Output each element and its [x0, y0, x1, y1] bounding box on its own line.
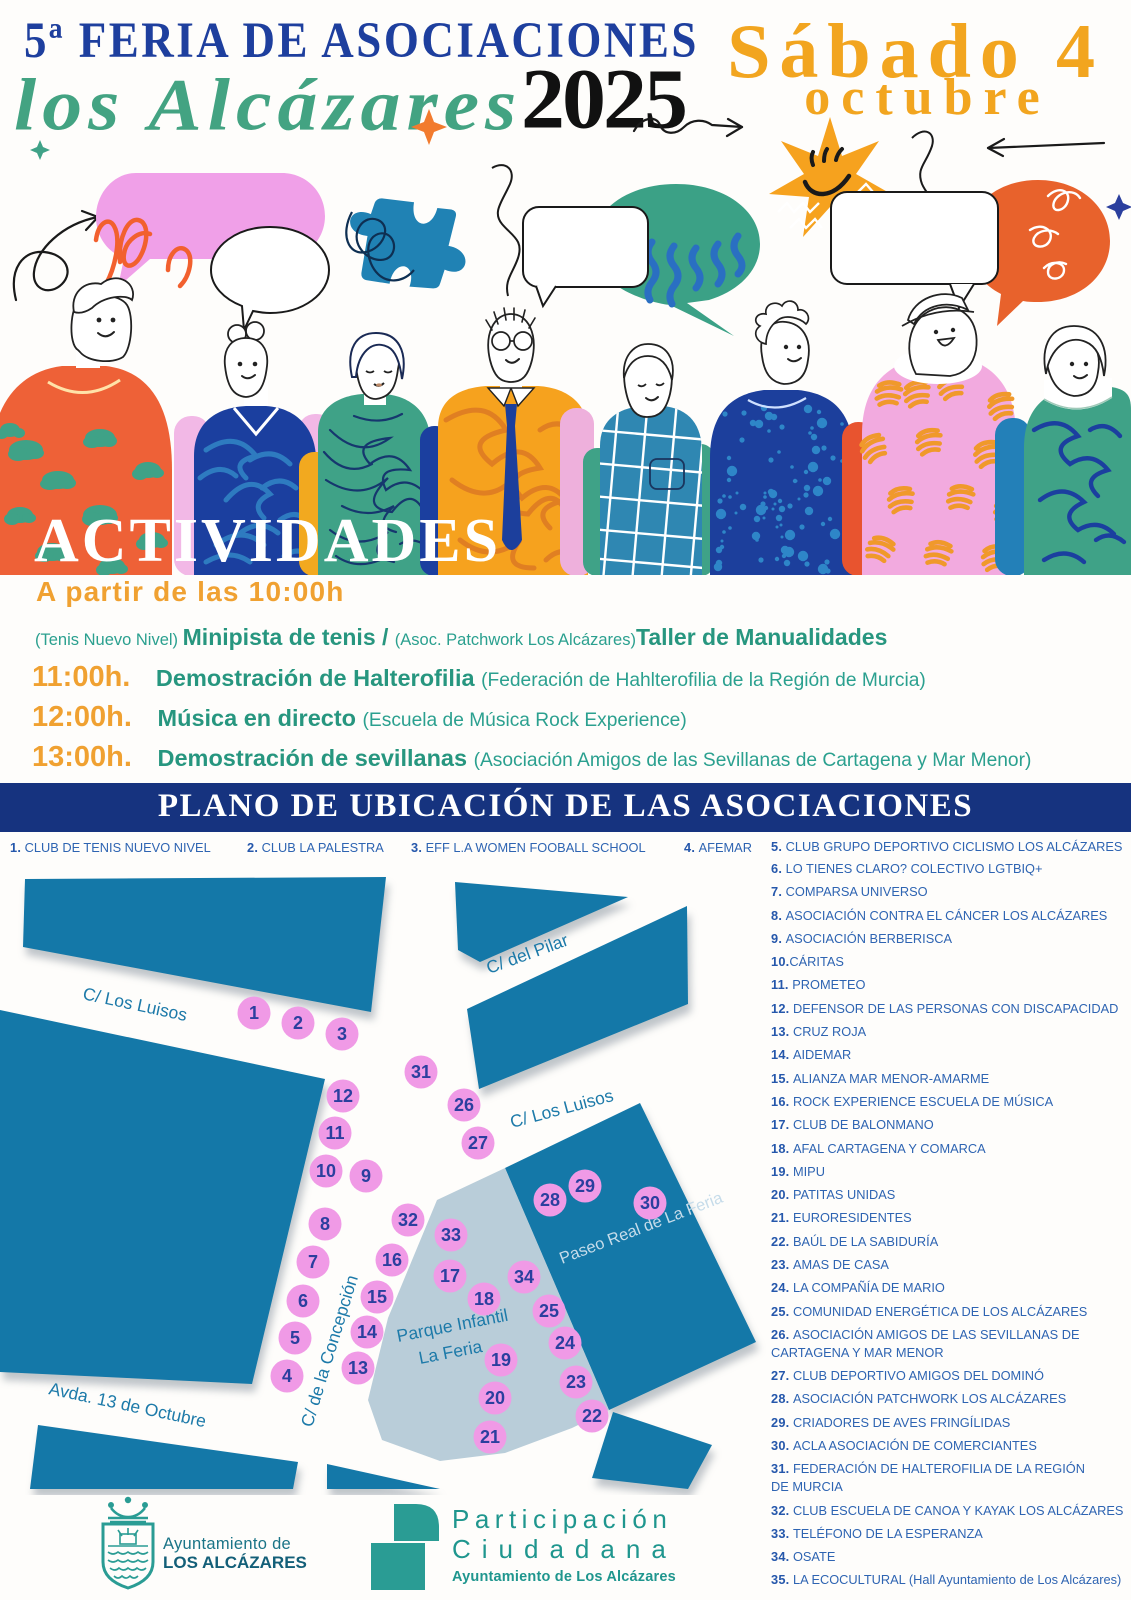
- svg-text:Avda. 13 de Octubre: Avda. 13 de Octubre: [47, 1378, 208, 1431]
- svg-text:25: 25: [539, 1301, 559, 1321]
- svg-text:7: 7: [308, 1252, 318, 1272]
- svg-text:8: 8: [320, 1214, 330, 1234]
- svg-text:16: 16: [382, 1250, 402, 1270]
- svg-text:34: 34: [514, 1267, 534, 1287]
- svg-text:9: 9: [361, 1166, 371, 1186]
- svg-text:LOS ALCÁZARES: LOS ALCÁZARES: [163, 1553, 307, 1572]
- svg-text:24: 24: [555, 1333, 575, 1353]
- svg-text:29: 29: [575, 1176, 595, 1196]
- svg-text:Ayuntamiento de Los Alcázares: Ayuntamiento de Los Alcázares: [452, 1569, 676, 1585]
- svg-text:30: 30: [640, 1193, 660, 1213]
- svg-text:17: 17: [440, 1266, 460, 1286]
- svg-text:2: 2: [293, 1013, 303, 1033]
- svg-text:15: 15: [367, 1287, 387, 1307]
- svg-text:31: 31: [411, 1062, 431, 1082]
- svg-text:26: 26: [454, 1095, 474, 1115]
- svg-text:13: 13: [348, 1358, 368, 1378]
- svg-text:3: 3: [337, 1024, 347, 1044]
- svg-text:11: 11: [325, 1123, 344, 1143]
- svg-text:10: 10: [316, 1161, 336, 1181]
- svg-text:6: 6: [298, 1291, 308, 1311]
- svg-text:Ciudadana: Ciudadana: [452, 1534, 677, 1564]
- svg-text:20: 20: [485, 1388, 505, 1408]
- svg-text:12: 12: [333, 1086, 353, 1106]
- svg-text:28: 28: [540, 1190, 560, 1210]
- svg-text:C/ Los Luisos: C/ Los Luisos: [81, 983, 189, 1025]
- svg-text:19: 19: [491, 1350, 511, 1370]
- svg-text:22: 22: [582, 1406, 602, 1426]
- svg-text:27: 27: [468, 1133, 488, 1153]
- svg-text:5: 5: [290, 1328, 300, 1348]
- svg-text:21: 21: [480, 1427, 500, 1447]
- svg-text:33: 33: [441, 1225, 461, 1245]
- svg-text:Participación: Participación: [452, 1504, 672, 1534]
- svg-text:23: 23: [566, 1372, 586, 1392]
- svg-text:1: 1: [249, 1003, 259, 1023]
- svg-text:14: 14: [357, 1322, 377, 1342]
- svg-text:Ayuntamiento de: Ayuntamiento de: [163, 1535, 291, 1553]
- svg-text:4: 4: [282, 1366, 292, 1386]
- svg-text:18: 18: [474, 1289, 494, 1309]
- svg-text:32: 32: [398, 1210, 418, 1230]
